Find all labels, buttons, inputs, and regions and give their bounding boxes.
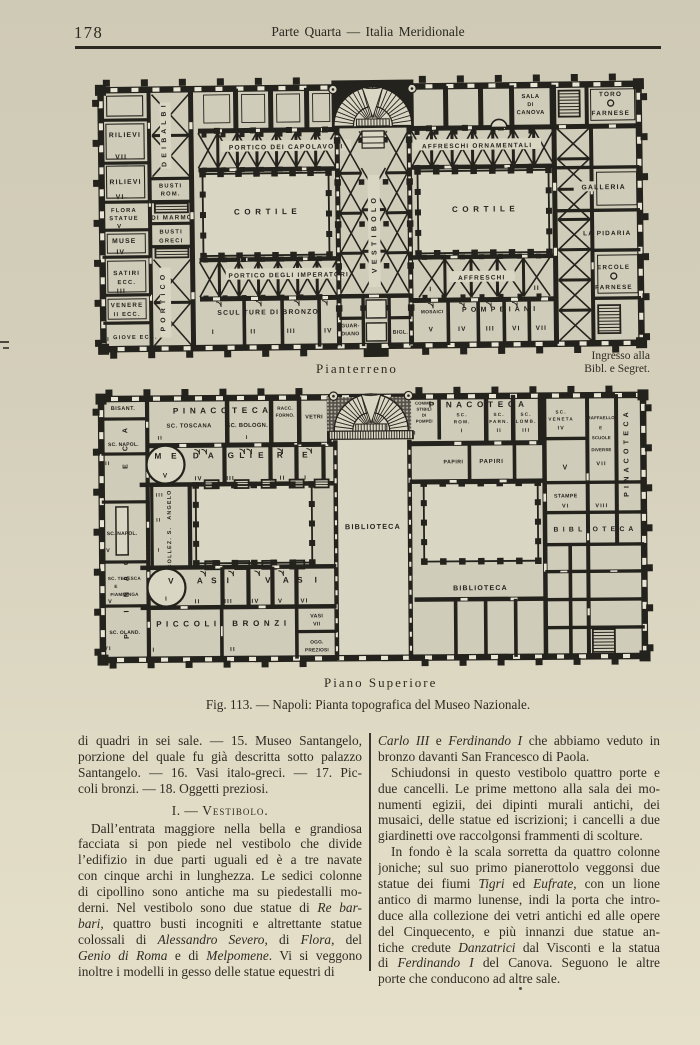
svg-text:IV: IV xyxy=(252,599,260,605)
svg-text:V: V xyxy=(108,599,113,605)
svg-text:P I N A C O T E C A: P I N A C O T E C A xyxy=(173,406,269,416)
svg-text:I: I xyxy=(124,609,131,612)
svg-text:A: A xyxy=(208,451,215,460)
svg-text:IV: IV xyxy=(195,476,203,482)
svg-text:III: III xyxy=(102,461,110,467)
svg-text:I: I xyxy=(304,476,307,482)
svg-text:DI: DI xyxy=(422,413,426,418)
svg-text:III: III xyxy=(156,493,164,499)
svg-text:IV: IV xyxy=(103,548,111,554)
svg-text:P I C C O L I: P I C C O L I xyxy=(156,619,217,628)
svg-text:PREZIOSI: PREZIOSI xyxy=(305,647,330,653)
svg-text:LOMB.: LOMB. xyxy=(516,419,537,424)
svg-text:POMPEI: POMPEI xyxy=(416,419,433,424)
svg-text:II: II xyxy=(497,428,502,434)
svg-text:D: D xyxy=(193,451,200,460)
svg-text:III: III xyxy=(522,428,530,434)
svg-text:I: I xyxy=(158,548,161,554)
svg-text:S: S xyxy=(297,576,304,585)
svg-text:PAPIRI: PAPIRI xyxy=(444,459,464,465)
svg-text:I: I xyxy=(165,597,168,603)
svg-text:I: I xyxy=(414,431,417,437)
svg-text:ROM.: ROM. xyxy=(454,419,471,424)
svg-text:III: III xyxy=(226,476,235,482)
svg-text:BIBLIOTECA: BIBLIOTECA xyxy=(453,585,508,592)
svg-text:PAPIRI: PAPIRI xyxy=(479,459,503,465)
svg-text:VASI: VASI xyxy=(310,613,323,619)
svg-text:DIVERSE: DIVERSE xyxy=(591,447,611,452)
svg-text:G: G xyxy=(228,451,236,460)
svg-text:V: V xyxy=(163,473,169,480)
svg-text:SC. OLAND.: SC. OLAND. xyxy=(109,630,140,636)
svg-text:II: II xyxy=(195,599,201,605)
svg-text:RACC.: RACC. xyxy=(277,406,293,411)
svg-text:II: II xyxy=(280,476,286,482)
svg-text:SC. NAPOL.: SC. NAPOL. xyxy=(108,442,139,448)
svg-text:OGG.: OGG. xyxy=(310,639,323,645)
svg-text:VII: VII xyxy=(596,461,606,467)
svg-text:E: E xyxy=(599,425,603,430)
svg-text:BIBLIOTECA: BIBLIOTECA xyxy=(345,522,401,531)
svg-text:VIII: VIII xyxy=(595,503,608,509)
svg-text:SC.: SC. xyxy=(555,409,566,414)
svg-text:III: III xyxy=(224,599,233,605)
svg-text:S: S xyxy=(211,576,218,585)
svg-text:A: A xyxy=(122,427,129,433)
svg-text:A: A xyxy=(197,576,204,585)
svg-text:II: II xyxy=(230,647,236,653)
svg-text:V: V xyxy=(563,464,569,471)
svg-text:I: I xyxy=(246,435,249,441)
svg-text:E: E xyxy=(258,451,265,460)
svg-text:ANGELO: ANGELO xyxy=(167,489,173,519)
svg-text:V: V xyxy=(168,577,175,586)
svg-text:SC. BOLOGN.: SC. BOLOGN. xyxy=(226,423,268,429)
svg-text:B I B L I O T E C A: B I B L I O T E C A xyxy=(554,526,635,534)
svg-text:VENETA: VENETA xyxy=(548,416,574,421)
svg-text:SC.: SC. xyxy=(520,412,531,417)
svg-text:I: I xyxy=(461,428,464,434)
svg-text:BISANT.: BISANT. xyxy=(111,406,136,412)
svg-text:E: E xyxy=(302,451,309,460)
svg-text:V: V xyxy=(265,576,272,585)
svg-text:A: A xyxy=(283,576,290,585)
svg-text:FIAMMINGA: FIAMMINGA xyxy=(110,592,139,597)
svg-text:SC.: SC. xyxy=(493,412,504,417)
svg-text:SC. TOSCANA: SC. TOSCANA xyxy=(167,423,213,429)
svg-text:I: I xyxy=(227,576,231,585)
svg-text:V: V xyxy=(278,599,283,605)
svg-text:SC. TEDESCA: SC. TEDESCA xyxy=(108,576,142,581)
svg-text:VII: VII xyxy=(313,621,321,627)
svg-text:FARN.: FARN. xyxy=(489,419,509,424)
svg-text:VI: VI xyxy=(301,599,309,605)
svg-text:SCUOLE: SCUOLE xyxy=(592,435,611,440)
svg-text:STAMPE: STAMPE xyxy=(554,493,578,499)
svg-text:COLLEZ. S.: COLLEZ. S. xyxy=(167,527,173,569)
svg-text:VI: VI xyxy=(562,503,570,509)
svg-text:RAFFAELLO: RAFFAELLO xyxy=(588,415,616,420)
svg-text:SC. NAPOL.: SC. NAPOL. xyxy=(107,531,138,537)
svg-text:I: I xyxy=(153,648,156,654)
svg-text:R: R xyxy=(277,451,284,460)
svg-text:II: II xyxy=(158,436,164,442)
svg-text:P I N A C O T E C A: P I N A C O T E C A xyxy=(429,400,525,410)
svg-text:VI: VI xyxy=(104,646,112,652)
svg-text:I: I xyxy=(250,451,254,460)
svg-text:FORNO.: FORNO. xyxy=(276,413,295,418)
svg-text:II: II xyxy=(156,518,161,524)
svg-text:E: E xyxy=(171,452,178,461)
svg-text:M: M xyxy=(154,452,162,461)
svg-text:B R O N Z I: B R O N Z I xyxy=(232,619,287,628)
svg-text:P I N A C O T E C A: P I N A C O T E C A xyxy=(623,411,631,497)
svg-text:I: I xyxy=(315,575,319,584)
svg-text:SC.: SC. xyxy=(456,412,467,417)
svg-text:VETRI: VETRI xyxy=(305,414,323,420)
svg-text:E: E xyxy=(122,463,129,469)
svg-text:IV: IV xyxy=(558,425,565,431)
svg-text:E: E xyxy=(114,584,118,589)
